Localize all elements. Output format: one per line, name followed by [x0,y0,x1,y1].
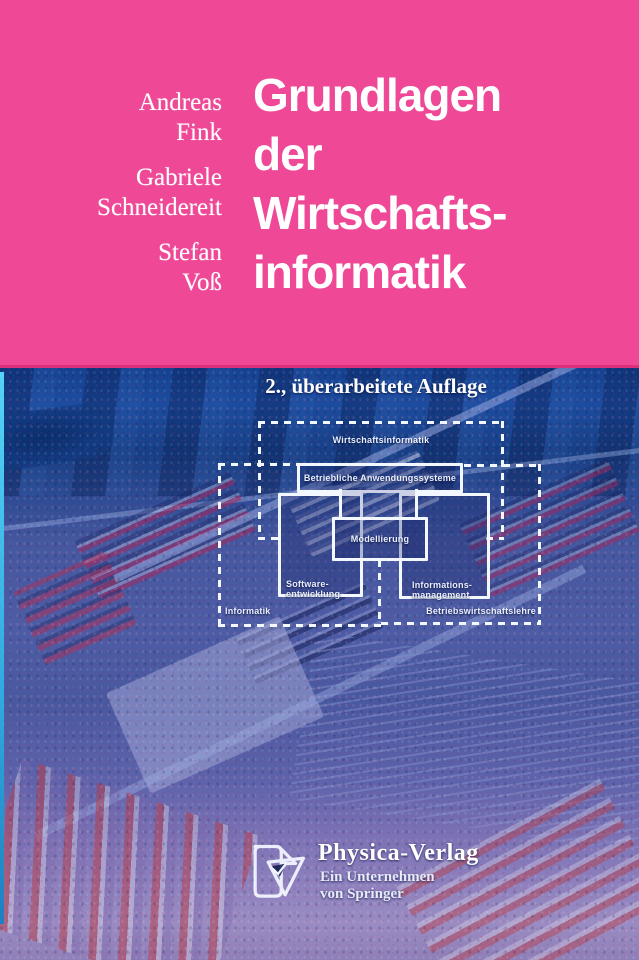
author-line: Andreas [0,88,222,118]
author-line: Schneidereit [0,193,222,223]
title-line: informatik [253,243,633,302]
publisher-subline: von Springer [320,886,404,903]
physica-verlag-pv-monogram-icon [243,840,309,905]
publisher-name: Physica-Verlag [318,840,479,867]
title-line: Grundlagen [253,66,633,125]
book-cover: Andreas Fink Gabriele Schneidereit Stefa… [0,0,639,960]
title-line: der [253,125,633,184]
author-line: Voß [0,268,222,298]
author-block: Andreas Fink Gabriele Schneidereit Stefa… [0,88,222,298]
book-title: Grundlagen der Wirtschafts- informatik [253,66,633,302]
title-line: Wirtschafts- [253,184,633,243]
author-line: Fink [0,118,222,148]
edition-banner: 2., überarbeitete Auflage [265,374,487,399]
left-edge-strip [0,372,4,924]
publisher-subline: Ein Unternehmen [320,869,435,886]
pink-header: Andreas Fink Gabriele Schneidereit Stefa… [0,0,639,368]
author-line: Stefan [0,238,222,268]
author-line: Gabriele [0,163,222,193]
